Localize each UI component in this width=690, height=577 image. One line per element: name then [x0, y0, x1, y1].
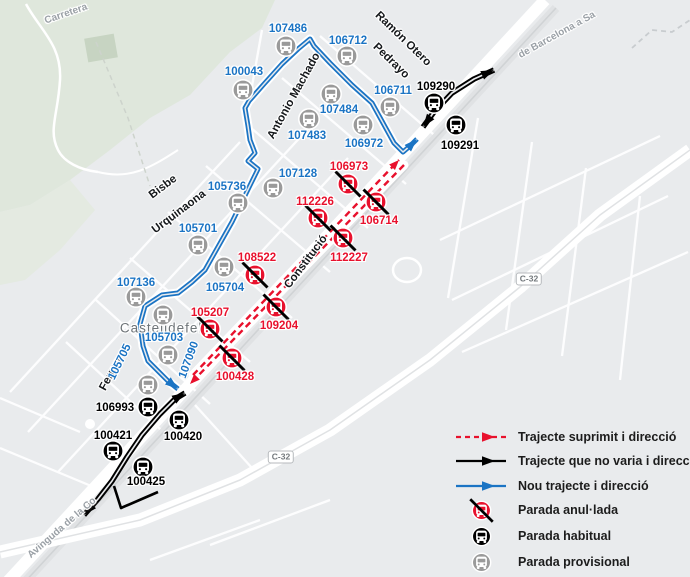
- stop-label-109290: 109290: [417, 81, 455, 93]
- stop-marker-106714[interactable]: [361, 187, 391, 217]
- stop-label-105736: 105736: [208, 181, 246, 193]
- stop-label-106973: 106973: [330, 161, 368, 173]
- stop-marker-106973[interactable]: [333, 169, 363, 199]
- stop-marker-100043[interactable]: [228, 75, 258, 105]
- stop-marker-109204[interactable]: [261, 292, 291, 322]
- stop-label-105701: 105701: [179, 223, 217, 235]
- stop-label-106714: 106714: [360, 215, 398, 227]
- stop-label-107128: 107128: [279, 168, 317, 180]
- stop-label-106972: 106972: [345, 138, 383, 150]
- road-badge-c-32: C-32: [516, 273, 542, 286]
- map-canvas[interactable]: Carreterade Barcelona a SaRamón OteroPed…: [0, 0, 690, 577]
- stop-label-107483: 107483: [288, 130, 326, 142]
- stop-label-112226: 112226: [296, 196, 334, 208]
- stop-label-100043: 100043: [225, 66, 263, 78]
- stop-label-106993: 106993: [96, 402, 134, 414]
- trajecte-no-varia-route: [114, 486, 158, 508]
- road-badge-c-32: C-32: [268, 451, 294, 464]
- stop-label-107486: 107486: [269, 23, 307, 35]
- stop-label-109291: 109291: [441, 140, 479, 152]
- stop-marker-105703[interactable]: [148, 300, 178, 330]
- stop-marker-107486[interactable]: [271, 31, 301, 61]
- stop-label-105207: 105207: [191, 307, 229, 319]
- stop-label-107484: 107484: [320, 104, 358, 116]
- stop-label-100428: 100428: [216, 371, 254, 383]
- stop-marker-112227[interactable]: [328, 223, 358, 253]
- stop-marker-105704[interactable]: [209, 252, 239, 282]
- stop-marker-106993[interactable]: [133, 392, 163, 422]
- stop-label-112227: 112227: [330, 252, 368, 264]
- stop-label-100421: 100421: [94, 430, 132, 442]
- stop-label-106712: 106712: [329, 35, 367, 47]
- stop-label-105704: 105704: [206, 282, 244, 294]
- stop-label-106711: 106711: [374, 85, 412, 97]
- stop-label-109204: 109204: [260, 320, 298, 332]
- stop-label-108522: 108522: [238, 252, 276, 264]
- stop-label-100425: 100425: [127, 476, 165, 488]
- stop-label-107136: 107136: [117, 277, 155, 289]
- stop-marker-109291[interactable]: [441, 110, 471, 140]
- stop-marker-100428[interactable]: [217, 343, 247, 373]
- stop-marker-108522[interactable]: [240, 260, 270, 290]
- stop-label-100420: 100420: [164, 431, 202, 443]
- stop-marker-107090[interactable]: [153, 340, 183, 370]
- stop-label-105703: 105703: [145, 332, 183, 344]
